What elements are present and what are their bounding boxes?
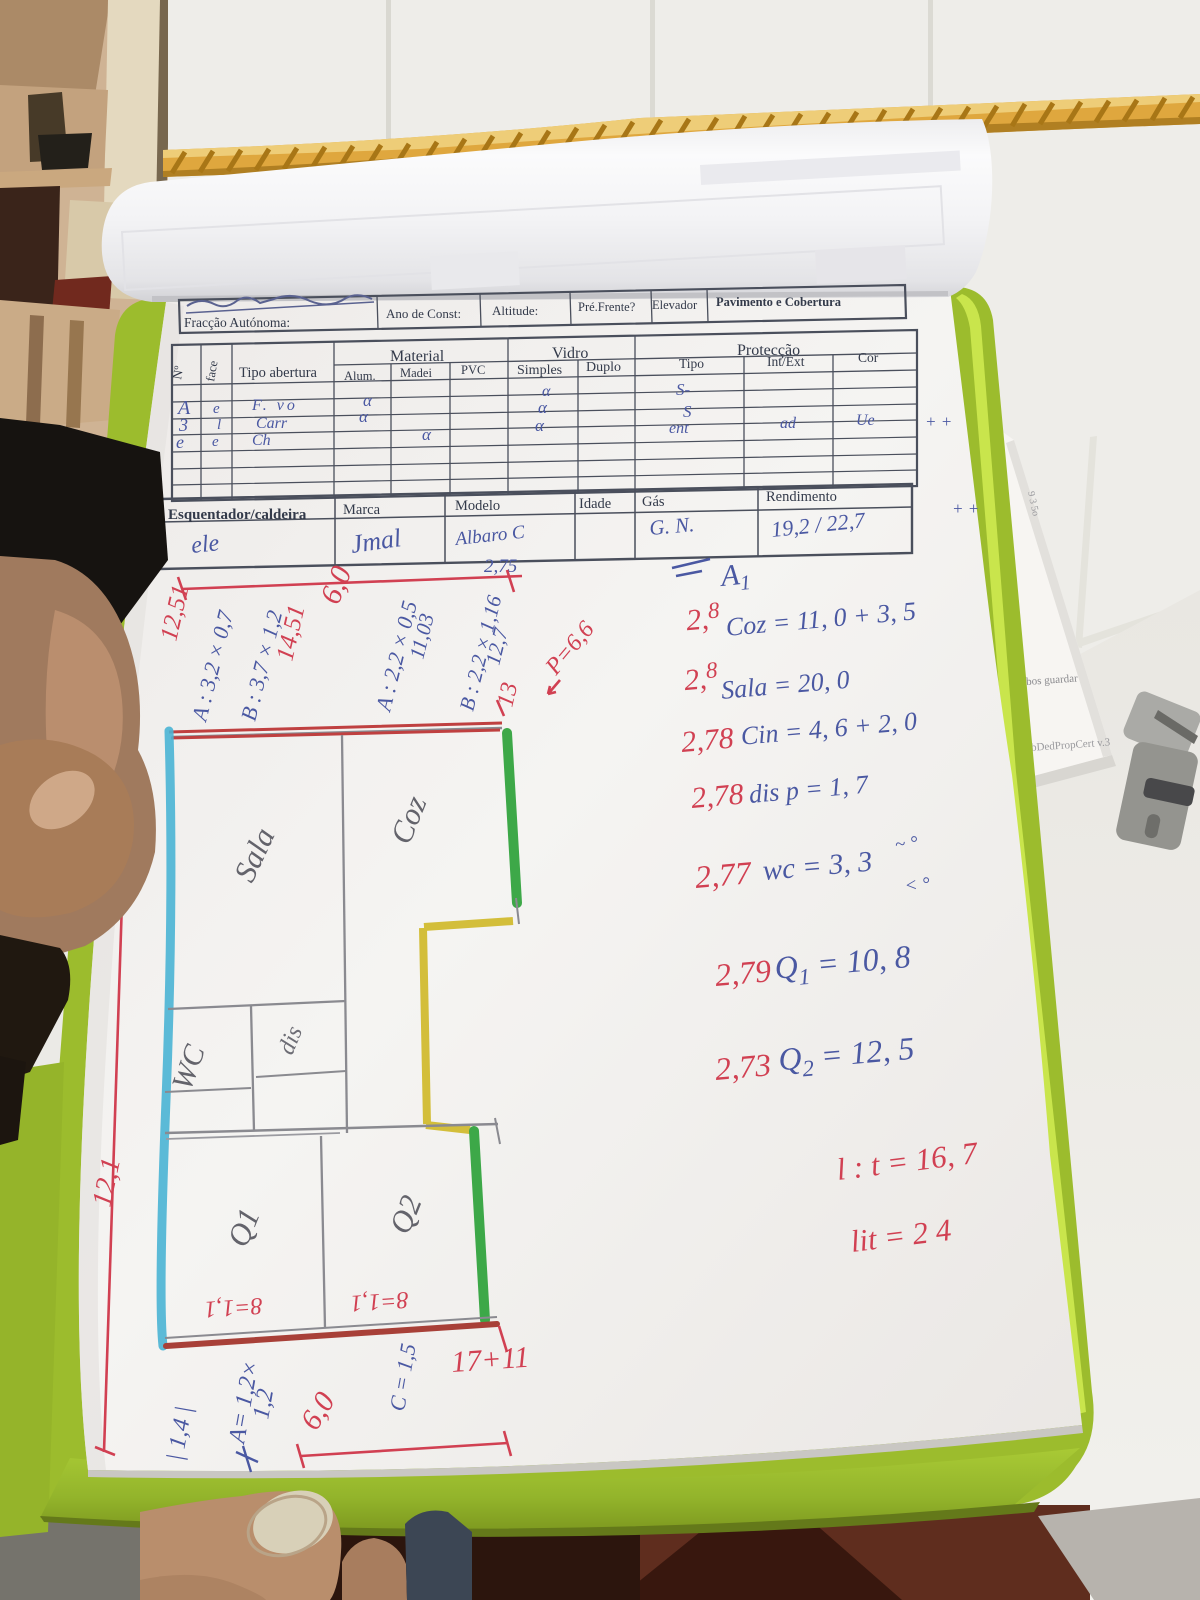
svg-text:Ch: Ch bbox=[252, 432, 271, 449]
svg-text:2,73: 2,73 bbox=[713, 1046, 772, 1087]
svg-text:F. vo: F. vo bbox=[251, 397, 298, 414]
svg-text:Material: Material bbox=[390, 348, 445, 365]
svg-text:Cor: Cor bbox=[858, 350, 879, 365]
svg-text:+ +: + + bbox=[952, 499, 979, 518]
svg-text:ent: ent bbox=[669, 420, 689, 437]
svg-text:~ °: ~ ° bbox=[894, 833, 919, 856]
svg-text:8=1,1: 8=1,1 bbox=[350, 1286, 410, 1316]
svg-text:Carr: Carr bbox=[256, 415, 288, 432]
svg-text:Simples: Simples bbox=[517, 363, 562, 378]
svg-text:2,78: 2,78 bbox=[680, 722, 735, 759]
svg-text:e: e bbox=[213, 401, 220, 417]
svg-text:Int/Ext: Int/Ext bbox=[767, 354, 805, 369]
svg-text:1,2: 1,2 bbox=[248, 1387, 279, 1421]
svg-text:Nº: Nº bbox=[169, 365, 186, 381]
svg-text:2,75: 2,75 bbox=[484, 556, 517, 577]
svg-text:Pavimento e Cobertura: Pavimento e Cobertura bbox=[716, 295, 842, 309]
svg-text:< °: < ° bbox=[904, 874, 931, 897]
svg-text:+ +: + + bbox=[925, 412, 952, 431]
svg-text:S: S bbox=[683, 402, 692, 421]
svg-text:Altitude:: Altitude: bbox=[492, 303, 538, 318]
svg-text:ad: ad bbox=[780, 415, 797, 432]
svg-text:Modelo: Modelo bbox=[455, 498, 500, 514]
svg-text:Idade: Idade bbox=[579, 496, 611, 512]
svg-text:Gás: Gás bbox=[642, 494, 665, 510]
svg-text:Duplo: Duplo bbox=[586, 360, 621, 375]
svg-text:Madei: Madei bbox=[400, 366, 432, 380]
svg-text:Rendimento: Rendimento bbox=[766, 489, 837, 505]
svg-text:ele: ele bbox=[190, 530, 221, 559]
svg-text:Esquentador/caldeira: Esquentador/caldeira bbox=[168, 507, 307, 523]
svg-text:S-: S- bbox=[676, 380, 691, 399]
svg-text:Ue: Ue bbox=[856, 412, 875, 429]
svg-text:G. N.: G. N. bbox=[648, 512, 695, 540]
svg-text:2,79: 2,79 bbox=[713, 952, 772, 993]
svg-text:α: α bbox=[538, 398, 548, 417]
svg-text:α: α bbox=[422, 425, 432, 444]
svg-text:e: e bbox=[212, 434, 219, 450]
svg-text:Alum.: Alum. bbox=[344, 369, 376, 383]
svg-text:Fracção Autónoma:: Fracção Autónoma: bbox=[184, 315, 290, 330]
svg-text:α: α bbox=[359, 407, 369, 426]
svg-text:2,77: 2,77 bbox=[693, 854, 754, 895]
svg-text:Ano de Const:: Ano de Const: bbox=[386, 306, 461, 321]
svg-text:8=1,1: 8=1,1 bbox=[204, 1292, 264, 1322]
svg-text:PVC: PVC bbox=[461, 363, 485, 377]
svg-text:l: l bbox=[217, 417, 221, 433]
svg-text:Vidro: Vidro bbox=[552, 345, 588, 362]
svg-text:2,78: 2,78 bbox=[690, 778, 745, 815]
svg-text:e: e bbox=[176, 432, 184, 452]
svg-text:Tipo abertura: Tipo abertura bbox=[239, 365, 318, 381]
svg-text:Elevador: Elevador bbox=[652, 298, 698, 312]
svg-text:Tipo: Tipo bbox=[679, 356, 704, 371]
svg-text:α: α bbox=[535, 416, 545, 435]
svg-text:17+11: 17+11 bbox=[450, 1341, 530, 1379]
svg-text:Marca: Marca bbox=[343, 502, 381, 518]
svg-text:Pré.Frente?: Pré.Frente? bbox=[578, 300, 636, 314]
